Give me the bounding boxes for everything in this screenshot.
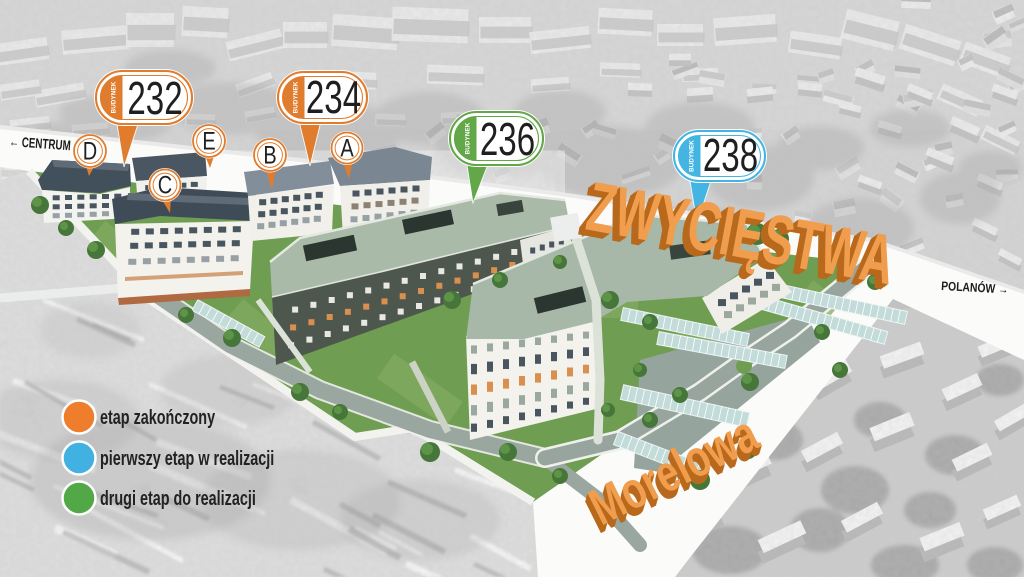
svg-text:C: C	[158, 171, 172, 199]
svg-text:etap zakończony: etap zakończony	[100, 406, 215, 429]
svg-text:232: 232	[127, 74, 182, 124]
svg-text:drugi etap do realizacji: drugi etap do realizacji	[100, 487, 256, 510]
svg-text:BUDYNEK: BUDYNEK	[689, 140, 696, 172]
svg-text:A: A	[340, 134, 354, 162]
svg-text:BUDYNEK: BUDYNEK	[293, 81, 300, 113]
svg-text:238: 238	[703, 131, 758, 181]
svg-text:pierwszy etap w realizacji: pierwszy etap w realizacji	[100, 447, 274, 470]
svg-text:B: B	[263, 141, 276, 169]
svg-text:D: D	[83, 137, 97, 165]
svg-text:BUDYNEK: BUDYNEK	[465, 122, 472, 154]
svg-text:234: 234	[306, 73, 361, 123]
svg-text:BUDYNEK: BUDYNEK	[111, 81, 118, 113]
svg-text:E: E	[202, 127, 215, 155]
svg-text:236: 236	[480, 115, 535, 165]
